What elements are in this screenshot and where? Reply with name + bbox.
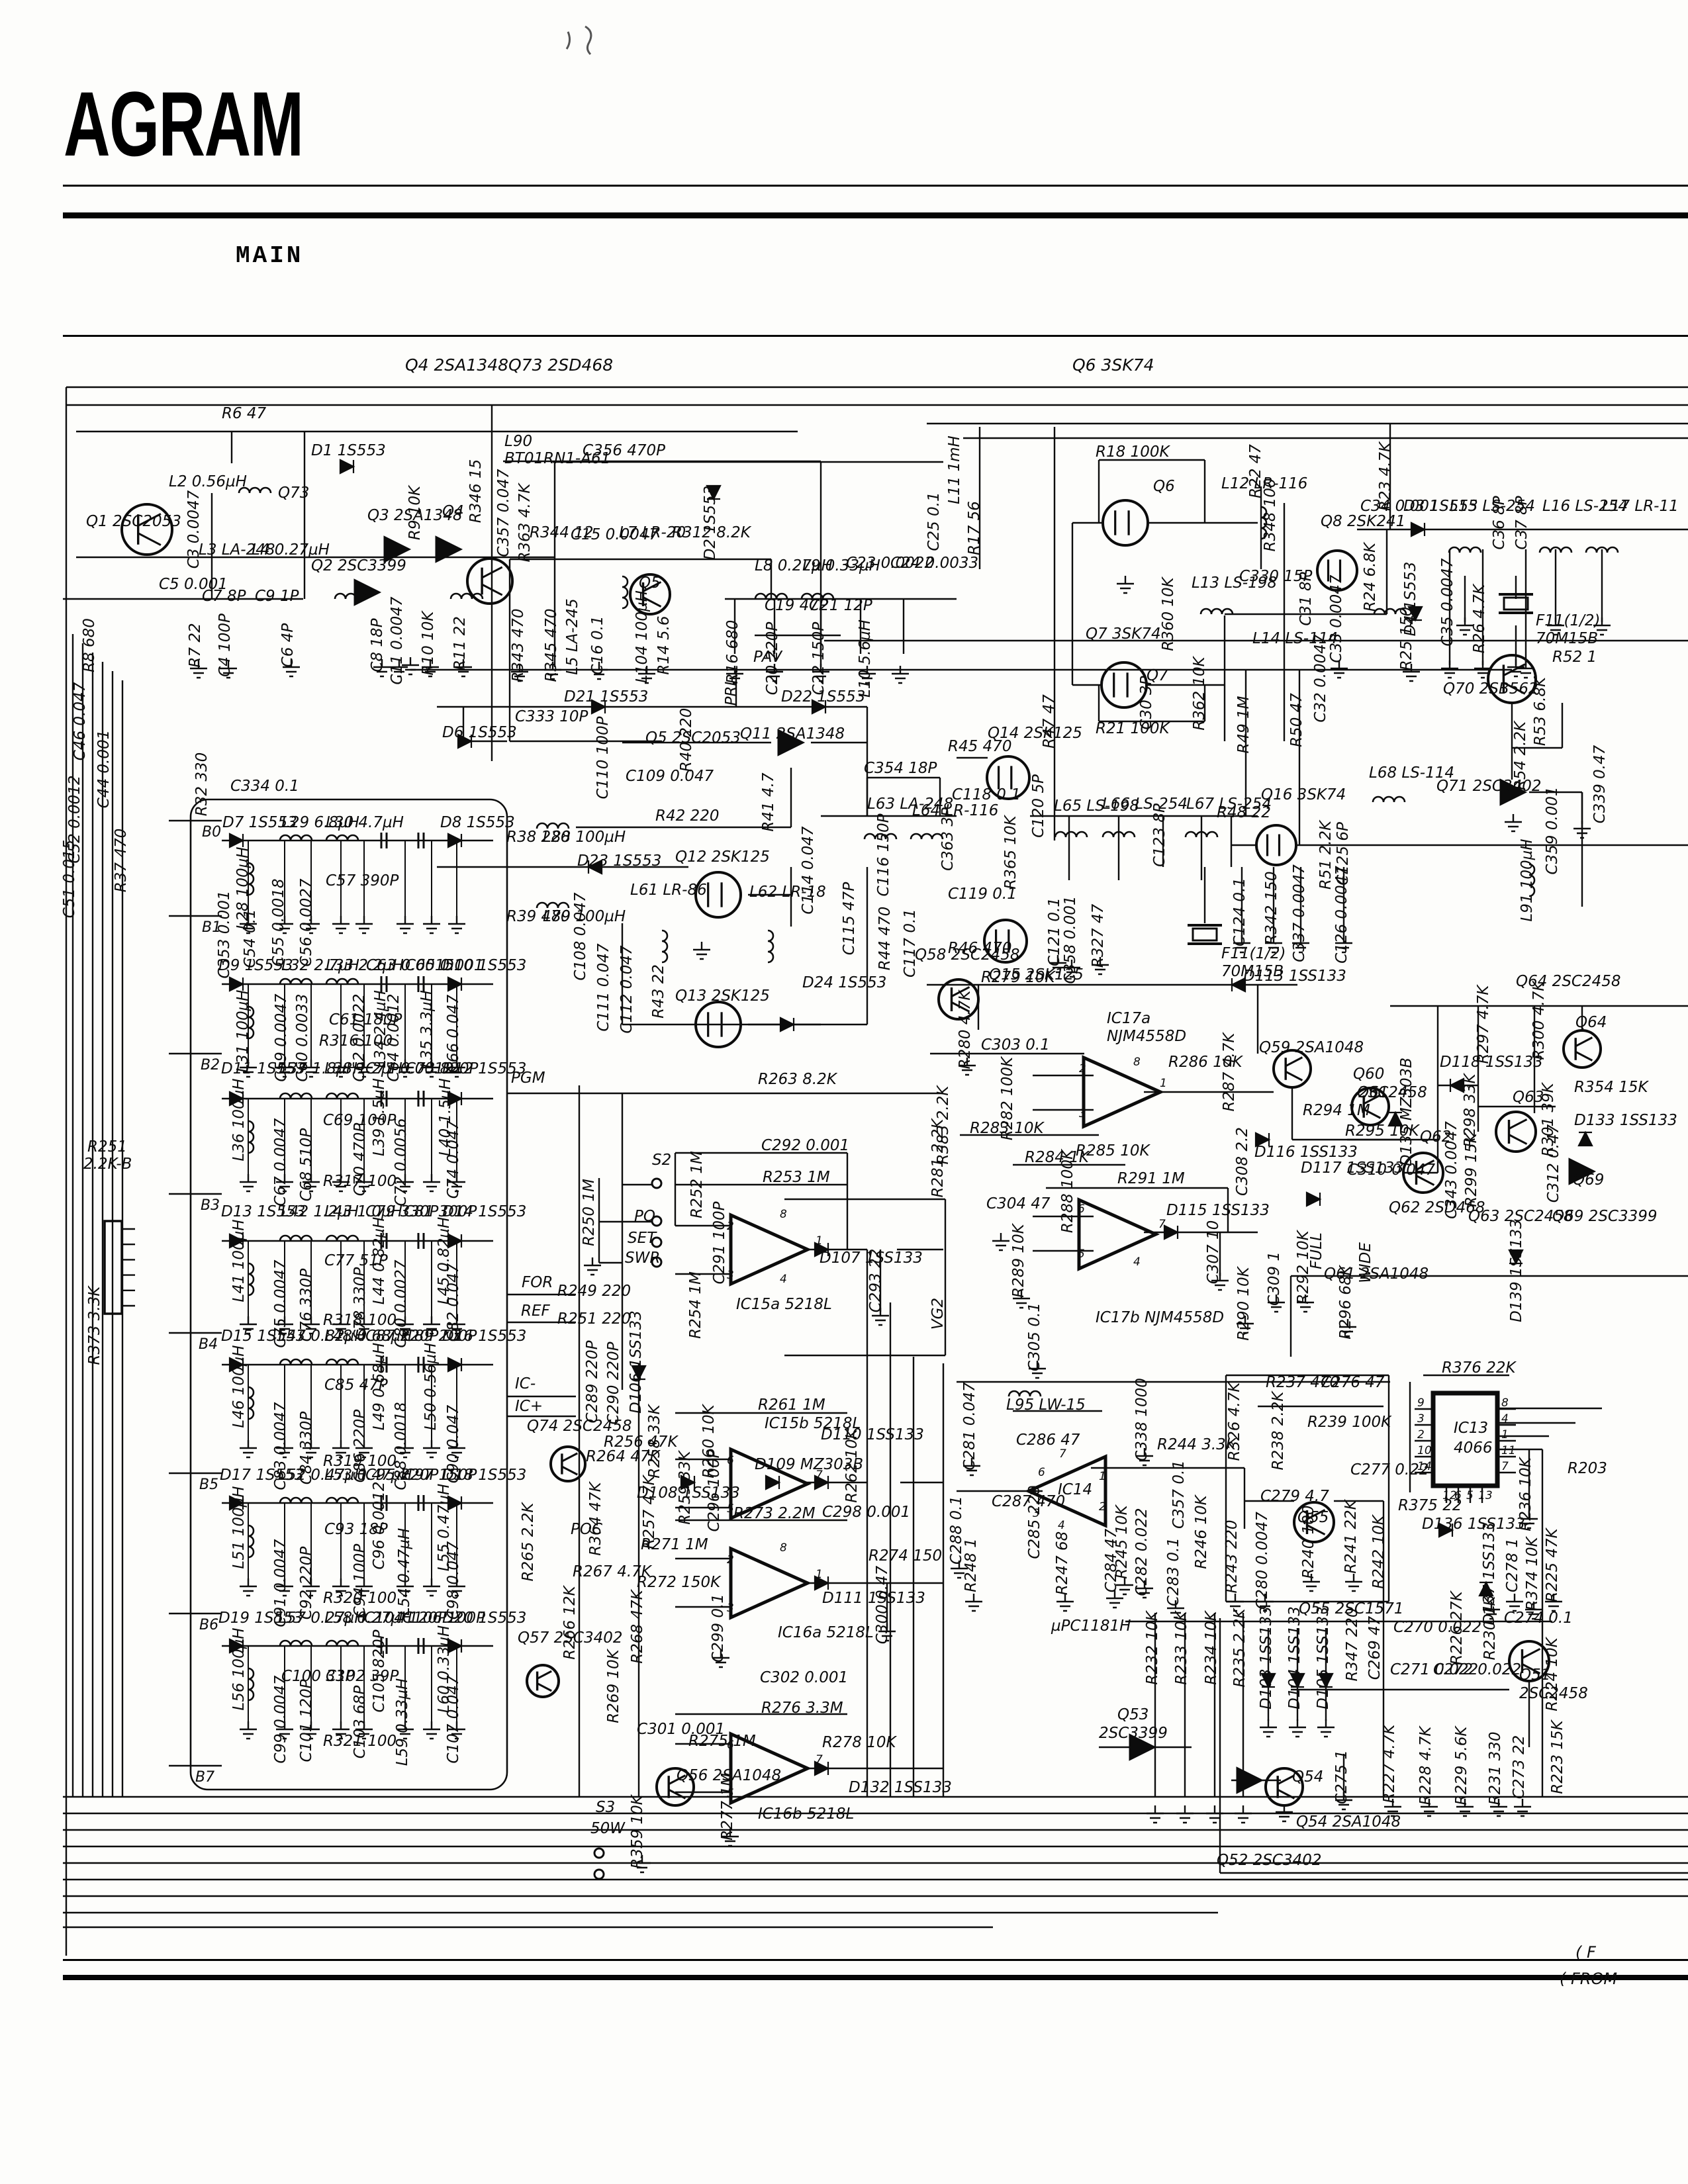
component-label: Q6 — [1153, 478, 1175, 495]
band-label: B3 — [201, 1197, 220, 1214]
component-label: R269 10K — [605, 1648, 622, 1723]
component-label: C109 0.047 — [626, 768, 714, 785]
component-label: C92 220P — [298, 1547, 315, 1620]
ground-icon — [240, 1721, 257, 1739]
component-label: R360 10K — [1160, 576, 1177, 651]
component-label: R365 10K — [1002, 814, 1019, 889]
component-label: Q69 — [1573, 1171, 1604, 1189]
component-label: R291 1M — [1117, 1170, 1185, 1187]
component-label: C126 0.0047 — [1333, 866, 1350, 964]
bjt-emitter — [1286, 1071, 1302, 1080]
component-label: R242 10K — [1370, 1514, 1387, 1588]
component-label: R265 2.2K — [520, 1502, 537, 1582]
ground-icon — [892, 666, 909, 683]
component-label: C358 0.001 — [1062, 895, 1079, 983]
ground-icon — [1147, 1805, 1164, 1823]
component-label: R342 150 — [1263, 871, 1280, 944]
transistor-icon — [527, 1665, 559, 1697]
component-label: Q2 2SC3399 — [311, 557, 406, 574]
component-label: C112 0.047 — [618, 945, 635, 1033]
diode-icon — [1307, 1193, 1320, 1206]
opamp-pin-number: 4 — [1058, 1519, 1065, 1532]
inductor-icon — [537, 823, 569, 829]
component-label: Q5 — [639, 574, 661, 592]
component-label: R373 3.3K — [86, 1285, 103, 1365]
component-label: SET — [628, 1230, 657, 1247]
component-label: S2 — [652, 1152, 671, 1169]
ground-icon — [423, 916, 440, 933]
ground-icon — [1260, 1719, 1277, 1737]
component-label: L49 0.68µH — [371, 1343, 388, 1431]
bjt-collector — [1286, 1058, 1302, 1066]
component-label: Q16 3SK74 — [1261, 786, 1346, 803]
component-label: R231 330 — [1487, 1731, 1504, 1805]
component-label: R246 10K — [1193, 1494, 1210, 1569]
component-label: R279 10K — [981, 969, 1056, 986]
crystal-icon — [1504, 598, 1528, 610]
ground-icon — [965, 1594, 982, 1611]
component-label: R24 6.8K — [1362, 541, 1379, 612]
bjt-emitter — [138, 533, 161, 545]
component-label: C272 0.022 — [1433, 1661, 1521, 1678]
component-label: R10 10K — [420, 610, 437, 676]
component-label: 2SC3399 — [1099, 1725, 1168, 1742]
component-label: Q53 — [1117, 1706, 1149, 1723]
band-label: B2 — [201, 1057, 220, 1073]
component-label: R6 47 — [222, 405, 267, 422]
component-label: R253 1M — [763, 1169, 830, 1186]
component-label: D103 1SS133 — [1258, 1606, 1275, 1709]
component-label: C290 220P — [605, 1342, 622, 1424]
component-label: R289 10K — [1010, 1222, 1027, 1297]
component-label: R37 470 — [113, 829, 130, 892]
component-label: C123 8P — [1151, 803, 1168, 867]
component-label: D116 1SS133 — [1254, 1144, 1358, 1161]
component-label: C114 0.047 — [800, 826, 817, 914]
ground-icon — [1506, 1594, 1523, 1611]
component-label: C25 0.1 — [925, 492, 943, 551]
component-label: C111 0.047 — [595, 943, 612, 1031]
component-label: C6 4P — [279, 623, 297, 668]
circuit-schematic-canvas: B0B1B2B3B4B5B6B7932101484111712651323184… — [0, 0, 1688, 2184]
opamp-pin-number: 4 — [1133, 1255, 1141, 1269]
component-label: R245 10K — [1113, 1504, 1131, 1578]
ground-icon — [1235, 1805, 1252, 1823]
ground-icon — [1227, 1594, 1244, 1611]
component-label: R318 100 — [323, 1312, 397, 1329]
diode-icon — [230, 978, 243, 991]
footer-net-label: ( FROM — [1560, 1970, 1617, 1988]
component-label: Q11 2SA1348 — [740, 725, 845, 743]
ground-icon — [1117, 576, 1134, 593]
bjt-emitter — [1575, 1052, 1592, 1060]
component-label: C283 0.1 — [1165, 1537, 1182, 1606]
component-label: C337 0.0047 — [1291, 864, 1308, 962]
diode-icon — [448, 834, 461, 847]
component-label: C354 18P — [864, 760, 937, 777]
component-label: Q73 — [278, 484, 309, 502]
component-label: PO — [634, 1208, 655, 1225]
component-label: D2 1S553 — [702, 486, 719, 561]
transistor-icon — [1103, 500, 1148, 545]
component-label: µPC1181H — [1051, 1617, 1131, 1635]
component-label: F11(1/2) — [1221, 945, 1286, 962]
component-label: C121 0.1 — [1046, 897, 1063, 966]
component-label: C67 0.0047 — [272, 1118, 289, 1206]
ground-icon — [1289, 1719, 1306, 1737]
component-label: L54 0.47µH — [396, 1528, 413, 1616]
component-label: C338 1000 — [1133, 1378, 1150, 1461]
component-label: R254 1M — [687, 1271, 704, 1339]
component-label: C309 1 — [1266, 1251, 1283, 1306]
opamp-pin-number: 7 — [1059, 1447, 1066, 1461]
band-label: B6 — [199, 1617, 218, 1633]
component-label: R267 4.7K — [573, 1563, 653, 1580]
component-label: R229 5.6K — [1453, 1725, 1470, 1805]
component-label: C37 8P — [1513, 496, 1530, 549]
component-label: R48 22 — [1217, 804, 1271, 821]
component-label: C270 0.022 — [1393, 1619, 1481, 1636]
ic-pin-number: 9 — [1417, 1396, 1425, 1410]
component-label: R258 33K — [646, 1403, 663, 1478]
component-label: 50W — [590, 1820, 626, 1837]
component-label: L59 0.33µH — [394, 1678, 411, 1766]
component-label: R11 22 — [451, 616, 469, 670]
component-label: Q52 2SC3402 — [1217, 1852, 1322, 1869]
component-label: R26 4.7K — [1471, 583, 1488, 653]
ground-icon — [397, 916, 414, 933]
band-label: B0 — [202, 824, 221, 841]
component-label: R41 4.7 — [760, 772, 777, 832]
scanned-schematic-page: AGRAM MAIN B0B1B2B3B4B5B6B79321014841117… — [0, 0, 1688, 2184]
opamp-pin-number: 6 — [1038, 1466, 1045, 1479]
component-label: L46 100µH — [230, 1345, 248, 1428]
component-label: Q54 2SA1048 — [1296, 1813, 1401, 1831]
component-label: C357 0.047 — [495, 469, 512, 557]
component-label: IC17b NJM4558D — [1096, 1309, 1224, 1326]
ic-pin-number: 7 — [1501, 1460, 1509, 1473]
component-label: R261 1M — [758, 1396, 825, 1414]
component-label: D118 1SS133 — [1440, 1054, 1543, 1071]
diode-icon — [448, 978, 461, 991]
component-label: C274 0.1 — [1504, 1610, 1573, 1627]
switch-contact-icon — [594, 1848, 604, 1858]
component-label: C300 0.47 — [874, 1565, 891, 1644]
transistor-icon — [467, 559, 512, 604]
component-label: R347 220 — [1344, 1608, 1361, 1681]
component-label: R21 100K — [1096, 720, 1170, 737]
component-label: R375 22 — [1398, 1497, 1462, 1514]
component-label: R290 10K — [1235, 1265, 1252, 1340]
component-label: C339 0.47 — [1591, 745, 1609, 823]
ground-icon — [1517, 660, 1534, 678]
component-label: D133 1SS133 — [1574, 1112, 1677, 1129]
component-label: VG2 — [929, 1298, 947, 1330]
ink-smudge — [567, 26, 591, 54]
component-label: IC+ — [515, 1398, 543, 1415]
opamp-pin-number: 8 — [780, 1208, 787, 1221]
component-label: C118 0.1 — [952, 786, 1021, 803]
component-label: R374 10K — [1524, 1535, 1541, 1610]
section-label: Q6 3SK74 — [1072, 355, 1154, 375]
component-label: L95 LW-15 — [1006, 1396, 1086, 1414]
component-label: R228 4.7K — [1417, 1725, 1434, 1805]
component-label: R343 470 — [510, 608, 527, 682]
component-label: D20 1S553 — [442, 1610, 526, 1627]
component-label: C21 12P — [809, 597, 872, 614]
component-label: C356 470P — [583, 442, 665, 459]
inductor-icon — [662, 931, 667, 962]
component-label: C276 47 — [1321, 1374, 1385, 1391]
component-label: FOR — [522, 1274, 553, 1291]
component-label: R42 220 — [655, 807, 719, 825]
component-label: R252 1M — [688, 1151, 706, 1218]
component-label: C74 0.047 — [445, 1120, 462, 1199]
component-label: C285 220 — [1026, 1485, 1043, 1559]
component-label: R239 100K — [1307, 1414, 1392, 1431]
component-label: L4 0.27µH — [252, 541, 330, 559]
component-label: R263 8.2K — [758, 1071, 838, 1088]
opamp-icon — [1079, 1200, 1156, 1269]
bjt-emitter — [538, 1684, 552, 1691]
component-label: R271 1M — [641, 1536, 708, 1553]
component-label: R236 10K — [1517, 1456, 1534, 1531]
component-label: IC15b 5218L — [765, 1415, 861, 1432]
component-label: D10 1S553 — [442, 957, 526, 974]
component-label: R241 22K — [1342, 1498, 1360, 1573]
component-label: R276 3.3M — [761, 1700, 843, 1717]
component-label: IC13 — [1454, 1420, 1488, 1437]
component-label: C4 100P — [216, 614, 234, 677]
component-label: C107 0.047 — [445, 1675, 462, 1763]
inductor-icon — [451, 594, 483, 599]
inductor-icon — [768, 931, 773, 962]
component-label: R274 150 — [868, 1547, 942, 1565]
component-label: R285 10K — [1076, 1142, 1150, 1160]
footer-net-label: ( F — [1575, 1943, 1597, 1962]
component-label: C310 0.047 — [1347, 1161, 1435, 1179]
component-label: Q13 2SK125 — [675, 987, 770, 1005]
component-label: IC16b 5218L — [758, 1805, 854, 1823]
component-label: R224 10K — [1544, 1636, 1561, 1711]
component-label: R240 100 — [1300, 1505, 1317, 1578]
component-label: C282 0.022 — [1133, 1508, 1150, 1596]
diode-icon — [230, 834, 243, 847]
component-label: L41 100µH — [230, 1219, 248, 1302]
component-label: L39 1.5µH — [371, 1078, 388, 1156]
component-label: R354 15K — [1574, 1079, 1649, 1096]
component-label: Q8 2SK241 — [1321, 513, 1405, 530]
component-label: C281 0.047 — [961, 1382, 978, 1470]
component-label: L30 4.7µH — [326, 814, 404, 831]
component-label: D23 1S553 — [577, 852, 661, 870]
component-label: R247 68 — [1054, 1531, 1071, 1595]
ground-icon — [1505, 814, 1522, 831]
bjt-collector — [1575, 1038, 1592, 1046]
component-label: L36 100µH — [230, 1078, 248, 1161]
component-label: R281 2.2K — [929, 1118, 947, 1198]
ground-icon — [423, 1578, 440, 1596]
opamp-pin-number: 4 — [780, 1273, 787, 1286]
component-label: C298 0.001 — [822, 1504, 910, 1521]
component-label: C16 0.1 — [589, 615, 606, 674]
component-label: Q70 2SB562 — [1443, 680, 1538, 698]
component-label: Q61 2SA1048 — [1324, 1265, 1429, 1283]
component-label: C116 150P — [875, 813, 892, 896]
component-label: Q60 — [1353, 1066, 1384, 1083]
component-label: R268 47K — [629, 1588, 646, 1663]
component-label: R348 100 — [1262, 478, 1279, 551]
opamp-pin-number: 6 — [727, 1454, 734, 1467]
component-label: C120 5P — [1030, 774, 1047, 838]
component-label: C57 390P — [326, 872, 399, 889]
component-label: C275 1 — [1333, 1750, 1350, 1804]
component-label: R14 5.6 — [655, 615, 673, 674]
component-label: L35 3.3µH — [418, 990, 436, 1068]
switch-contact-icon — [594, 1870, 604, 1879]
component-label: C22 150P — [810, 622, 827, 696]
component-label: C115 47P — [841, 882, 858, 956]
component-label: Q64 — [1575, 1014, 1607, 1031]
component-label: C24 0.0033 — [890, 555, 978, 572]
bjt-collector — [562, 1453, 577, 1461]
component-label: C279 4.7 — [1260, 1488, 1329, 1505]
inductor-icon — [248, 1263, 254, 1295]
component-label: D132 1SS133 — [849, 1779, 952, 1796]
inductor-icon — [1009, 1391, 1041, 1396]
ic-pin-number: 3 — [1417, 1412, 1425, 1426]
component-label: R226 27K — [1448, 1590, 1466, 1664]
ic-pin-number: 5 — [1466, 1489, 1474, 1502]
component-label: L44 0.82µH — [371, 1217, 388, 1305]
ic-pin-number: 10 — [1417, 1444, 1432, 1457]
component-label: R49 1M — [1235, 696, 1252, 753]
component-label: R230 1K — [1481, 1595, 1499, 1661]
component-label: C32 0.0047 — [1312, 634, 1329, 722]
component-label: R9 10K — [406, 484, 424, 540]
ground-icon — [1176, 1805, 1194, 1823]
opamp-pin-number: 5 — [1078, 1248, 1085, 1261]
opamp-pin-number: 2 — [1099, 1500, 1106, 1514]
component-label: R264 47K — [586, 1448, 661, 1465]
component-label: IC17a — [1107, 1010, 1150, 1027]
component-label: R225 47K — [1544, 1527, 1561, 1602]
component-label: C359 0.001 — [1544, 786, 1561, 874]
ground-icon — [992, 1233, 1009, 1250]
band-label: B4 — [199, 1336, 218, 1353]
component-label: C8 18P — [369, 618, 386, 672]
component-label: R251 — [87, 1138, 127, 1156]
component-label: C307 10 — [1205, 1220, 1222, 1285]
component-label: D1 1S553 — [311, 442, 386, 459]
component-label: D104 1SS133 — [1286, 1606, 1303, 1709]
component-label: D6 1S553 — [442, 724, 517, 741]
ground-icon — [423, 1721, 440, 1739]
component-label: C277 0.22 — [1350, 1461, 1429, 1479]
component-label: D22 1S553 — [781, 688, 865, 705]
component-label: L51 100µH — [230, 1486, 248, 1569]
component-label: PRI — [723, 681, 740, 705]
component-label: C304 47 — [986, 1195, 1051, 1212]
component-label: C51 0.015 — [61, 840, 78, 918]
component-label: D136 1SS133 — [1422, 1516, 1525, 1533]
opamp-pin-number: 1 — [1160, 1077, 1167, 1090]
component-label: L61 LR-86 — [630, 882, 707, 899]
component-label: L2 0.56µH — [169, 473, 247, 490]
component-label: R53 6.8K — [1532, 676, 1549, 746]
component-label: Q61 — [1357, 1084, 1388, 1101]
inductor-icon — [1055, 832, 1087, 837]
component-label: C44 0.001 — [95, 730, 113, 808]
component-label: C11 0.0047 — [389, 596, 406, 684]
component-label: C293 22 — [867, 1249, 884, 1313]
ground-icon — [240, 1440, 257, 1457]
component-label: R359 10K — [629, 1794, 646, 1868]
bjt-emitter — [1509, 1135, 1527, 1144]
component-label: D16 1S553 — [442, 1328, 526, 1345]
component-label: R294 1M — [1303, 1102, 1370, 1119]
component-label: 2.2K-B — [83, 1156, 132, 1173]
component-label: C312 0.47 — [1545, 1124, 1562, 1203]
component-label: Q12 2SK125 — [675, 848, 770, 866]
ic-pin-number: 13 — [1478, 1489, 1493, 1502]
ground-icon — [1441, 660, 1458, 678]
component-label: R233 10K — [1173, 1610, 1190, 1684]
diode-icon — [1411, 523, 1425, 536]
component-label: R376 22K — [1442, 1359, 1517, 1377]
ground-icon — [1276, 1804, 1293, 1821]
component-label: R299 15K — [1463, 1132, 1480, 1206]
component-label: Q59 2SA1048 — [1259, 1039, 1364, 1056]
component-label: D8 1S553 — [440, 814, 515, 831]
ic-pin-number: 2 — [1417, 1428, 1425, 1441]
component-label: R18 100K — [1096, 443, 1170, 461]
component-label: C308 2.2 — [1234, 1127, 1251, 1196]
component-label: R17 56 — [966, 501, 983, 555]
component-label: F11(1/2) — [1536, 612, 1600, 629]
opamp-pin-number: 6 — [1078, 1203, 1085, 1216]
section-label: Q73 2SD468 — [508, 355, 613, 375]
component-label: D18 1S553 — [442, 1467, 526, 1484]
component-label: R47 47 — [1041, 694, 1058, 749]
component-label: L10 5.6µH — [857, 619, 874, 698]
opamp-pin-number: 1 — [1099, 1470, 1106, 1483]
component-label: R43 22 — [650, 964, 667, 1019]
component-label: C299 0.1 — [710, 1594, 727, 1662]
component-label: FULL — [1308, 1232, 1325, 1269]
ground-icon — [1317, 1719, 1335, 1737]
transistor-icon — [1564, 1030, 1601, 1068]
component-label: C46 0.047 — [71, 682, 89, 760]
component-label: C269 47 — [1366, 1615, 1383, 1680]
diode-icon — [1164, 1226, 1178, 1239]
component-label: L66 LS-254 — [1102, 796, 1188, 813]
component-label: R251 220 — [557, 1310, 631, 1328]
opamp-pin-number: 8 — [1133, 1056, 1141, 1069]
component-label: R25 150 — [1398, 607, 1415, 670]
opamp-icon — [731, 1549, 808, 1617]
bjt-collector — [1523, 1649, 1540, 1658]
component-label: C101 120P — [298, 1679, 315, 1762]
component-label: C286 47 — [1016, 1432, 1080, 1449]
component-label: IC15a 5218L — [736, 1296, 832, 1313]
component-label: C124 0.1 — [1231, 878, 1248, 946]
component-label: R249 220 — [557, 1283, 631, 1300]
component-label: R51 2.2K — [1317, 819, 1335, 889]
component-label: L90 — [504, 433, 532, 450]
component-label: R326 4.7K — [1226, 1381, 1243, 1461]
opamp-pin-number: 2 — [727, 1553, 734, 1567]
